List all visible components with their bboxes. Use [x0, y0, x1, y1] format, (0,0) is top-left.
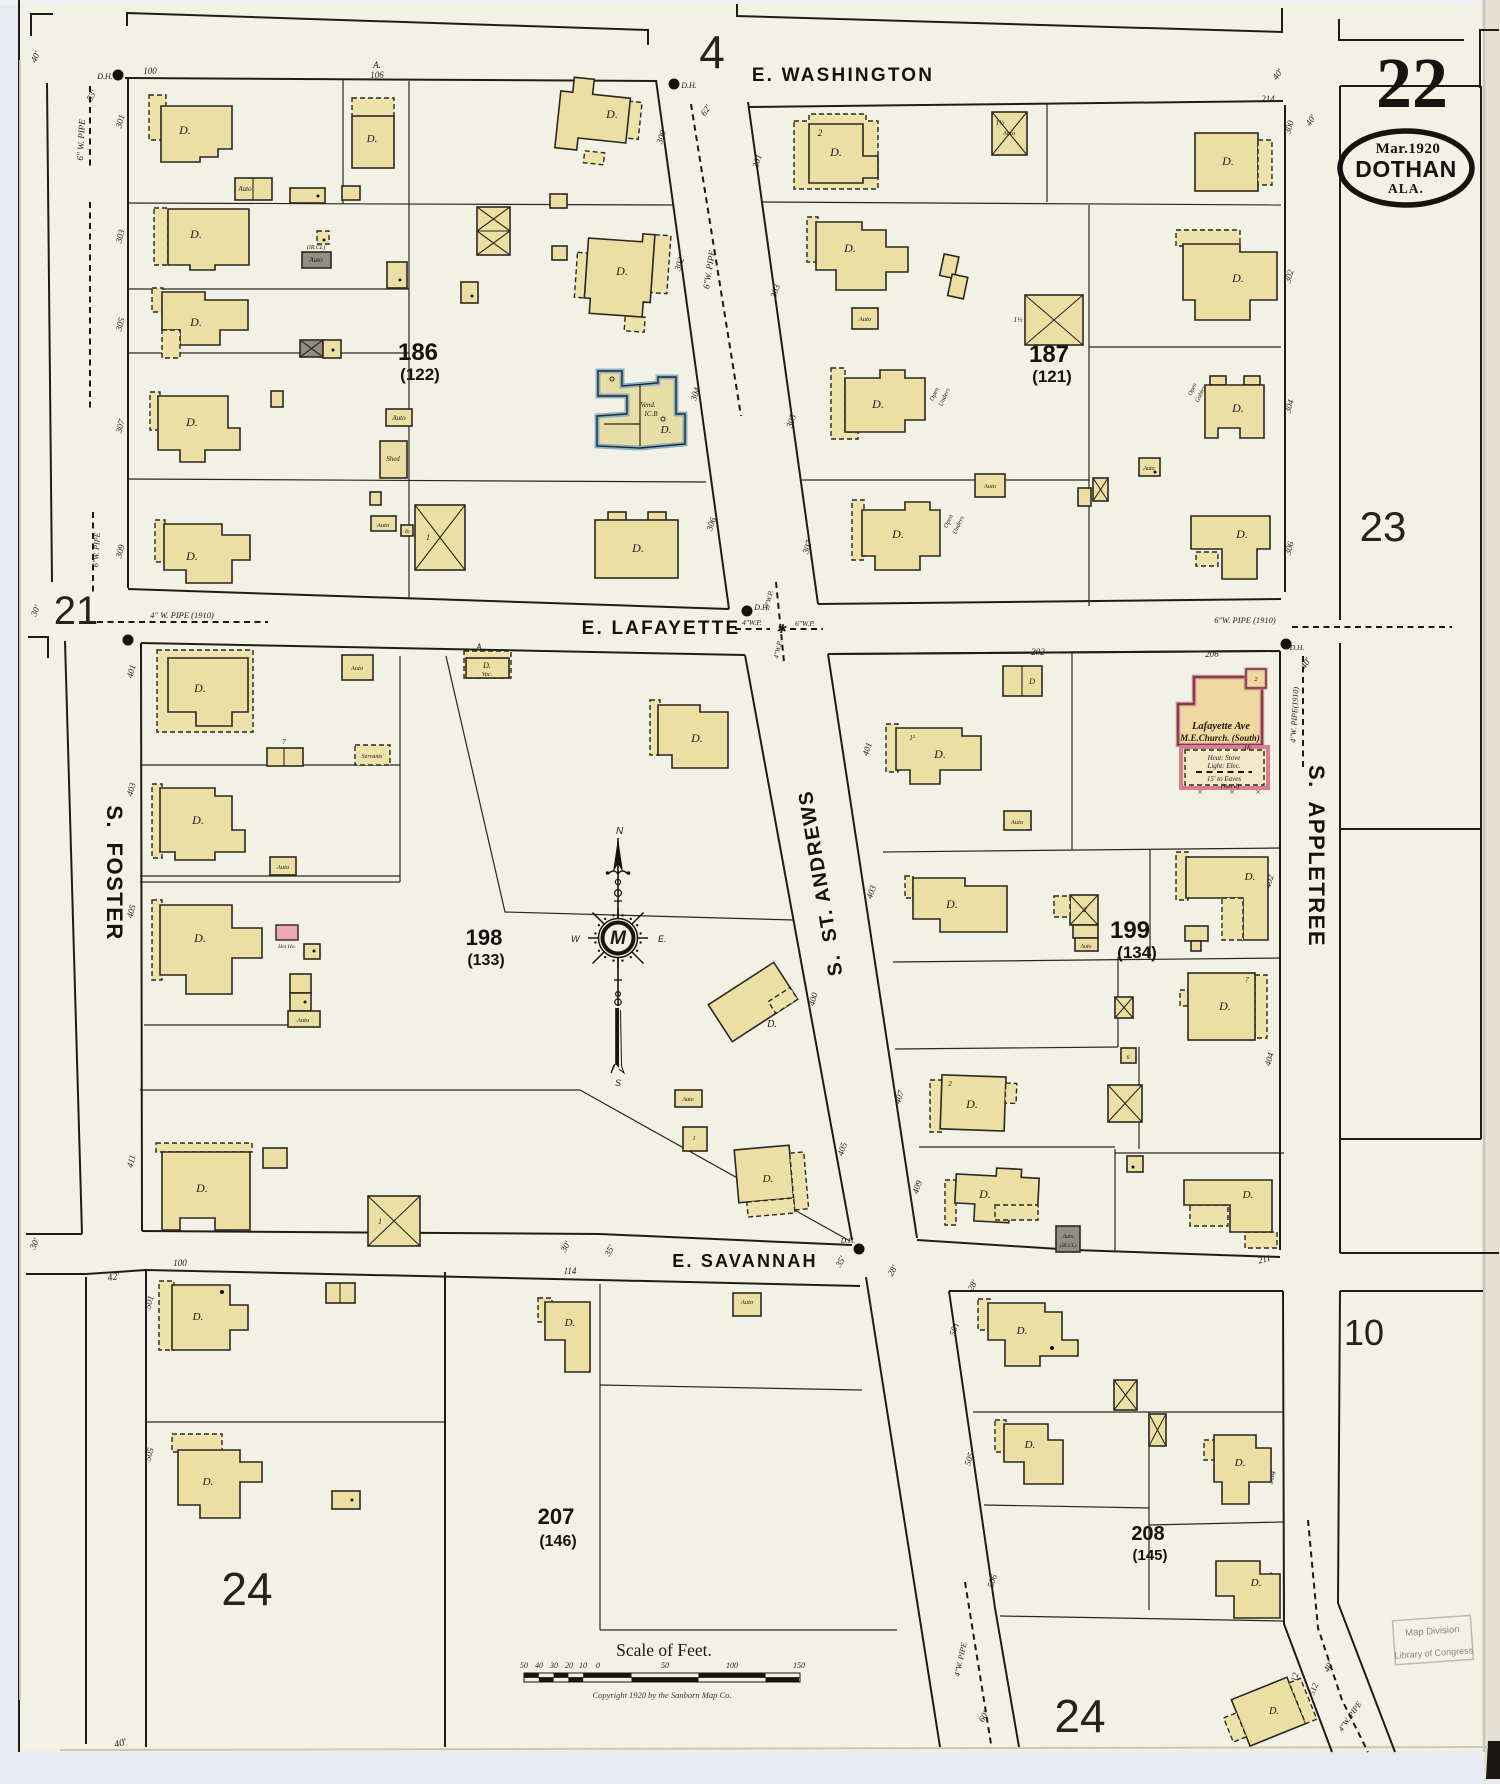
svg-text:D.: D.: [1218, 999, 1231, 1013]
svg-text:D.: D.: [631, 541, 644, 555]
svg-text:D.: D.: [1242, 1189, 1254, 1201]
svg-text:D.: D.: [965, 1097, 978, 1111]
svg-text:4″ W. PIPE (1910): 4″ W. PIPE (1910): [150, 610, 214, 620]
svg-text:186: 186: [398, 339, 438, 366]
svg-text:18: 18: [1244, 744, 1252, 752]
svg-text:Auto: Auto: [1002, 130, 1016, 137]
svg-text:10: 10: [579, 1661, 587, 1670]
svg-text:214: 214: [1261, 94, 1275, 104]
svg-text:198: 198: [466, 925, 503, 950]
svg-text:100: 100: [143, 66, 157, 76]
svg-text:2: 2: [948, 1080, 952, 1088]
svg-text:208: 208: [1131, 1523, 1164, 1545]
svg-text:IC.B: IC.B: [643, 410, 658, 418]
svg-text:Shed: Shed: [386, 455, 400, 463]
svg-text:Mar.1920: Mar.1920: [1376, 141, 1441, 157]
svg-text:D.: D.: [1231, 271, 1244, 285]
svg-text:7: 7: [282, 738, 286, 746]
svg-text:D.: D.: [933, 747, 946, 761]
svg-text:50: 50: [520, 1661, 528, 1670]
svg-text:ALA.: ALA.: [1388, 181, 1424, 196]
svg-text:Auto: Auto: [1079, 944, 1091, 950]
svg-text:Lafayette Ave: Lafayette Ave: [1191, 721, 1250, 732]
svg-text:D.: D.: [366, 133, 378, 145]
svg-text:A.: A.: [372, 60, 381, 70]
svg-text:207: 207: [538, 1504, 575, 1529]
svg-text:1: 1: [693, 1136, 696, 1142]
svg-text:D: D: [1028, 677, 1035, 686]
svg-text:(146): (146): [539, 1533, 576, 1550]
svg-text:D.: D.: [1268, 1706, 1279, 1717]
svg-text:24: 24: [221, 1563, 272, 1615]
svg-text:Servants: Servants: [362, 754, 383, 760]
svg-text:(122): (122): [400, 365, 440, 384]
svg-text:150: 150: [793, 1661, 805, 1670]
svg-text:S. FOSTER: S. FOSTER: [102, 805, 127, 941]
svg-text:D.: D.: [564, 1317, 576, 1329]
svg-text:Heat: Stove: Heat: Stove: [1207, 754, 1241, 762]
svg-text:50: 50: [661, 1661, 669, 1670]
svg-text:D.: D.: [192, 1311, 204, 1323]
svg-text:6″W.P.: 6″W.P.: [795, 619, 815, 628]
svg-text:D.H.: D.H.: [840, 1236, 856, 1245]
svg-text:D.: D.: [178, 123, 191, 137]
svg-text:E. WASHINGTON: E. WASHINGTON: [752, 65, 934, 86]
svg-text:E.: E.: [658, 934, 667, 944]
svg-text:1½: 1½: [1014, 316, 1024, 324]
svg-text:D.: D.: [762, 1173, 774, 1185]
svg-text:Auto: Auto: [308, 256, 323, 264]
svg-text:Auto: Auto: [1142, 466, 1154, 472]
svg-text:D.: D.: [1244, 871, 1256, 883]
svg-text:D.: D.: [191, 813, 204, 827]
svg-text:22: 22: [1376, 43, 1448, 123]
svg-text:114: 114: [564, 1266, 577, 1276]
svg-text:Vend.: Vend.: [640, 401, 656, 409]
svg-text:24: 24: [1054, 1690, 1105, 1742]
svg-text:D.: D.: [1235, 527, 1248, 541]
svg-text:S: S: [615, 1078, 621, 1088]
svg-text:1²: 1²: [909, 734, 916, 742]
svg-text:6″W. PIPE (1910): 6″W. PIPE (1910): [1214, 615, 1276, 625]
svg-text:D.: D.: [978, 1187, 991, 1201]
svg-text:7: 7: [1245, 976, 1249, 984]
svg-text:1½: 1½: [996, 119, 1006, 127]
svg-text:1: 1: [378, 1217, 382, 1226]
svg-text:D.: D.: [605, 107, 618, 121]
svg-text:6″W. PIPE: 6″W. PIPE: [91, 532, 102, 567]
svg-text:D.: D.: [829, 145, 842, 159]
svg-text:D.: D.: [766, 1019, 777, 1030]
svg-text:Light: Elec.: Light: Elec.: [1206, 762, 1240, 770]
svg-text:Auto: Auto: [858, 316, 872, 323]
svg-text:Vac.: Vac.: [482, 672, 492, 678]
svg-text:D.: D.: [1234, 1457, 1246, 1469]
svg-text:D.H.: D.H.: [1289, 643, 1305, 652]
svg-text:D.: D.: [202, 1476, 214, 1488]
svg-text:×: ×: [1229, 787, 1235, 797]
svg-text:×: ×: [1197, 787, 1203, 797]
svg-text:1: 1: [426, 533, 430, 542]
svg-text:Hot Ho.: Hot Ho.: [277, 944, 296, 950]
svg-text:(IR.CL): (IR.CL): [307, 244, 326, 251]
svg-text:D.: D.: [1221, 154, 1234, 168]
svg-text:M.E.Church. (South): M.E.Church. (South): [1179, 733, 1260, 743]
svg-text:D.H.: D.H.: [680, 81, 697, 90]
svg-text:D.: D.: [871, 397, 884, 411]
svg-text:Scale of Feet.: Scale of Feet.: [616, 1640, 712, 1660]
svg-text:23: 23: [1360, 503, 1407, 550]
svg-text:30: 30: [549, 1661, 558, 1670]
svg-text:(145): (145): [1132, 1547, 1167, 1564]
svg-text:D.: D.: [843, 241, 856, 255]
svg-text:E. SAVANNAH: E. SAVANNAH: [672, 1251, 818, 1271]
svg-text:100: 100: [726, 1661, 738, 1670]
svg-text:D.: D.: [1231, 401, 1244, 415]
svg-text:0: 0: [596, 1661, 600, 1670]
svg-text:206: 206: [1205, 649, 1219, 659]
svg-text:100: 100: [173, 1258, 187, 1268]
svg-text:D.H.: D.H.: [96, 72, 113, 81]
svg-text:M: M: [610, 928, 627, 949]
svg-text:Auto: Auto: [276, 864, 290, 871]
svg-text:4″W.P.: 4″W.P.: [742, 618, 762, 627]
svg-text:(121): (121): [1032, 367, 1072, 386]
svg-text:10: 10: [1344, 1312, 1384, 1353]
svg-text:Auto: Auto: [740, 1299, 754, 1306]
svg-text:D.: D.: [891, 527, 904, 541]
svg-text:Auto: Auto: [681, 1097, 693, 1103]
svg-text:Copyright 1920 by the Sanborn: Copyright 1920 by the Sanborn Map Co.: [592, 1690, 731, 1700]
svg-text:6: 6: [1127, 1055, 1130, 1061]
svg-text:D.: D.: [185, 549, 198, 563]
svg-text:D.: D.: [193, 931, 206, 945]
svg-text:D.: D.: [1250, 1577, 1262, 1589]
svg-text:21: 21: [54, 589, 99, 633]
svg-text:D.: D.: [189, 315, 202, 329]
svg-text:D.: D.: [660, 424, 672, 436]
svg-text:4: 4: [699, 26, 725, 78]
svg-text:(134): (134): [1117, 943, 1157, 962]
svg-text:D.: D.: [690, 731, 703, 745]
svg-text:199: 199: [1110, 917, 1150, 944]
svg-text:Ta: Ta: [404, 529, 410, 535]
svg-text:20: 20: [565, 1661, 573, 1670]
svg-text:D.: D.: [189, 227, 202, 241]
svg-text:Auto: Auto: [376, 522, 390, 529]
svg-text:D.: D.: [185, 415, 198, 429]
svg-text:S. APPLETREE: S. APPLETREE: [1304, 765, 1329, 947]
svg-text:E. LAFAYETTE: E. LAFAYETTE: [582, 618, 741, 639]
svg-text:40: 40: [535, 1661, 543, 1670]
svg-text:(133): (133): [467, 952, 504, 969]
svg-text:D.: D.: [945, 897, 958, 911]
svg-text:Auto: Auto: [1010, 819, 1024, 826]
svg-text:Auto: Auto: [1061, 1234, 1073, 1240]
svg-text:2: 2: [1083, 906, 1087, 914]
svg-text:2: 2: [818, 128, 823, 138]
svg-text:Auto: Auto: [983, 483, 997, 490]
svg-text:DOTHAN: DOTHAN: [1355, 156, 1456, 182]
svg-text:D.: D.: [1016, 1325, 1028, 1337]
svg-text:Auto: Auto: [296, 1017, 310, 1024]
svg-text:D.: D.: [615, 264, 628, 278]
svg-text:×: ×: [1255, 787, 1261, 797]
svg-text:D.: D.: [482, 661, 491, 670]
svg-text:15' to Eaves: 15' to Eaves: [1207, 775, 1241, 783]
svg-text:D.: D.: [1024, 1439, 1036, 1451]
svg-text:Auto: Auto: [391, 414, 406, 422]
svg-text:Auto: Auto: [237, 185, 252, 193]
svg-text:Auto: Auto: [350, 665, 364, 672]
svg-text:D.: D.: [195, 1181, 208, 1195]
svg-text:202: 202: [1031, 647, 1045, 657]
svg-text:N: N: [616, 826, 624, 837]
svg-text:D.: D.: [193, 681, 206, 695]
svg-text:(IR.CL): (IR.CL): [1060, 1242, 1077, 1249]
